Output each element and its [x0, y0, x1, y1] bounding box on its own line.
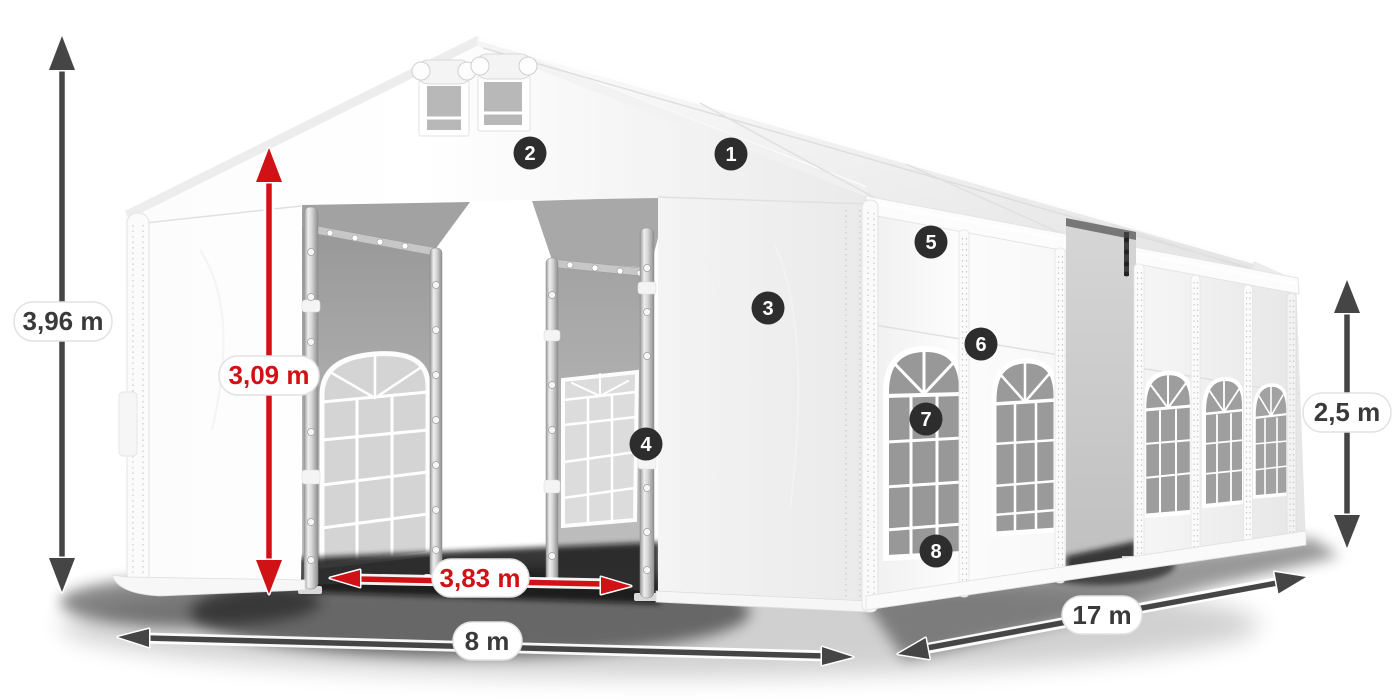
- side-length-value: 17 m: [1072, 600, 1131, 630]
- callout-3-badge[interactable]: 3: [752, 292, 785, 325]
- side-door-opening: [1066, 218, 1136, 578]
- callout-8-number: 8: [930, 541, 941, 563]
- callout-5-badge[interactable]: 5: [915, 226, 948, 259]
- side-window-5: [1254, 385, 1288, 497]
- callout-5-number: 5: [925, 232, 936, 254]
- interior-right-window: [563, 372, 637, 526]
- arrowhead-right: [1275, 572, 1307, 594]
- side-window-2: [994, 361, 1056, 534]
- callout-1-badge[interactable]: 1: [715, 138, 748, 171]
- entrance-width-value: 3,83 m: [440, 563, 521, 593]
- callout-2-number: 2: [524, 143, 535, 165]
- callout-7-badge[interactable]: 7: [910, 403, 943, 436]
- side-window-1: [886, 349, 962, 558]
- entrance-height-value: 3,09 m: [229, 360, 310, 390]
- front-opening-interior: [298, 197, 660, 604]
- callout-4-number: 4: [640, 434, 652, 456]
- tent-illustration: 1 2 3 4 5 6 7 8: [0, 0, 1400, 700]
- side-window-4: [1204, 379, 1244, 506]
- interior-left-window: [322, 354, 428, 566]
- interior-left-bay: [302, 202, 470, 586]
- arrowhead-up: [49, 36, 75, 70]
- callout-2-badge[interactable]: 2: [514, 137, 547, 170]
- dimension-total-height: 3,96 m: [14, 36, 112, 592]
- side-wall-height-value: 2,5 m: [1314, 397, 1381, 427]
- callout-8-badge[interactable]: 8: [920, 535, 953, 568]
- front-width-value: 8 m: [465, 626, 510, 656]
- total-height-value: 3,96 m: [23, 306, 104, 336]
- arrowhead-down: [1334, 515, 1360, 548]
- callout-3-number: 3: [762, 298, 773, 320]
- callout-7-number: 7: [920, 409, 931, 431]
- side-window-3: [1144, 373, 1192, 516]
- callout-1-number: 1: [725, 144, 736, 166]
- gable-window-right: [471, 54, 537, 131]
- corner-strap: [119, 392, 137, 456]
- callout-6-badge[interactable]: 6: [965, 328, 998, 361]
- gable-window-left: [412, 60, 476, 136]
- dimension-side-wall-height: 2,5 m: [1303, 280, 1391, 548]
- callout-6-number: 6: [975, 334, 986, 356]
- arrowhead-down: [49, 558, 75, 592]
- tent-dimension-diagram: 1 2 3 4 5 6 7 8: [0, 0, 1400, 700]
- callout-4-badge[interactable]: 4: [630, 428, 663, 461]
- arrowhead-up: [1334, 280, 1360, 313]
